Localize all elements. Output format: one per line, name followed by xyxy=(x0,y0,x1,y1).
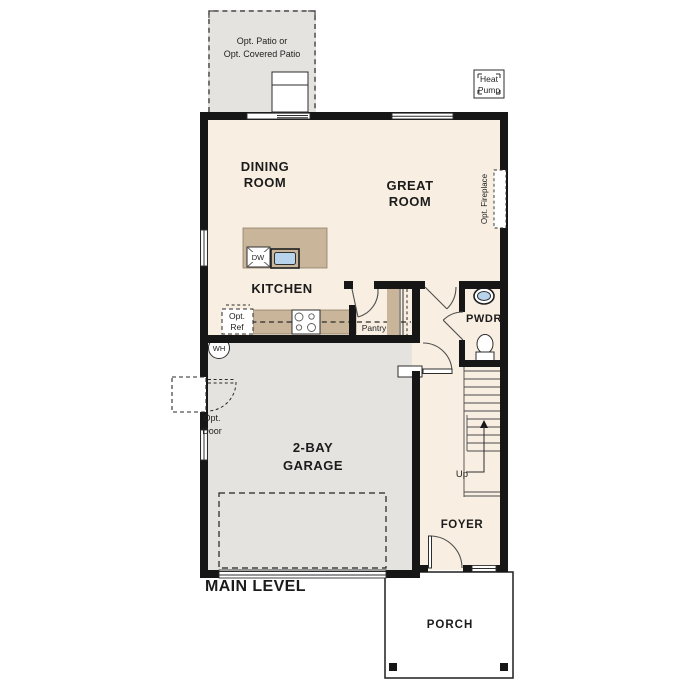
dishwasher-label: DW xyxy=(252,253,265,262)
toilet-bowl xyxy=(477,335,493,354)
island-sink-basin xyxy=(275,253,296,265)
heat-pump-label-line2: Pump xyxy=(478,85,500,95)
wall-garage-right-lower xyxy=(412,371,420,578)
pantry-label: Pantry xyxy=(362,323,387,333)
door-leaf xyxy=(429,536,432,568)
chimney xyxy=(272,72,308,112)
wall-top xyxy=(200,112,508,120)
wall-garage-right-upper xyxy=(412,289,420,343)
foyer-label: FOYER xyxy=(441,519,484,531)
patio-label-line2: Opt. Covered Patio xyxy=(224,49,301,59)
garage-label-line1: 2-BAY xyxy=(293,440,333,455)
kitchen-label: KITCHEN xyxy=(251,281,312,296)
heat-pump-label-line1: Heat xyxy=(480,74,499,84)
wall-foyer-bottom-b xyxy=(463,565,472,572)
porch-label: PORCH xyxy=(427,619,474,631)
wall-pantry-jamb xyxy=(344,281,353,289)
heat-pump-unit: Heat Pump xyxy=(474,70,504,98)
water-heater-label: WH xyxy=(213,344,226,353)
opt-fireplace-label: Opt. Fireplace xyxy=(480,173,489,224)
opt-fireplace-box xyxy=(494,170,506,228)
porch-post-left xyxy=(389,663,397,671)
opt-door-dashed-box xyxy=(172,377,206,412)
porch-post-right xyxy=(500,663,508,671)
opt-door-label-line2: Door xyxy=(202,426,222,436)
opt-ref-label-line1: Opt. xyxy=(229,311,245,321)
door-leaf xyxy=(423,369,452,374)
wall-foyer-bottom-c xyxy=(496,565,508,572)
wall-garage-bottom-left xyxy=(200,570,220,578)
wall-pantry-top xyxy=(374,281,425,289)
page-title: MAIN LEVEL xyxy=(205,578,306,595)
great-room-label-line1: GREAT xyxy=(386,178,433,193)
wall-pwdr-bottom xyxy=(459,360,508,367)
floor-plan-svg: Opt. Patio or Opt. Covered Patio Heat Pu… xyxy=(0,0,687,687)
garage-floor xyxy=(208,343,412,570)
opt-ref-label-line2: Ref xyxy=(230,322,244,332)
dining-room-label-line1: DINING xyxy=(241,159,290,174)
pwdr-label: PWDR xyxy=(466,313,502,325)
wall-pwdr-top xyxy=(459,281,508,289)
wall-left xyxy=(200,112,208,578)
wall-foyer-bottom-a xyxy=(420,565,428,572)
wall-pwdr-left-upper xyxy=(459,289,465,312)
patio-label-line1: Opt. Patio or xyxy=(237,36,288,46)
wall-pantry-side xyxy=(349,305,356,335)
pantry-shelf xyxy=(387,289,399,335)
floor-plan: Opt. Patio or Opt. Covered Patio Heat Pu… xyxy=(0,0,687,687)
up-label: Up xyxy=(456,469,468,480)
wall-kitchen-garage xyxy=(200,335,420,343)
great-room-label-line2: ROOM xyxy=(389,194,431,209)
pwdr-sink-basin xyxy=(478,292,491,301)
opt-door-label-line1: Opt. xyxy=(203,413,220,423)
garage-label-line2: GARAGE xyxy=(283,458,343,473)
chimney-box xyxy=(272,72,308,112)
dining-room-label-line2: ROOM xyxy=(244,175,286,190)
